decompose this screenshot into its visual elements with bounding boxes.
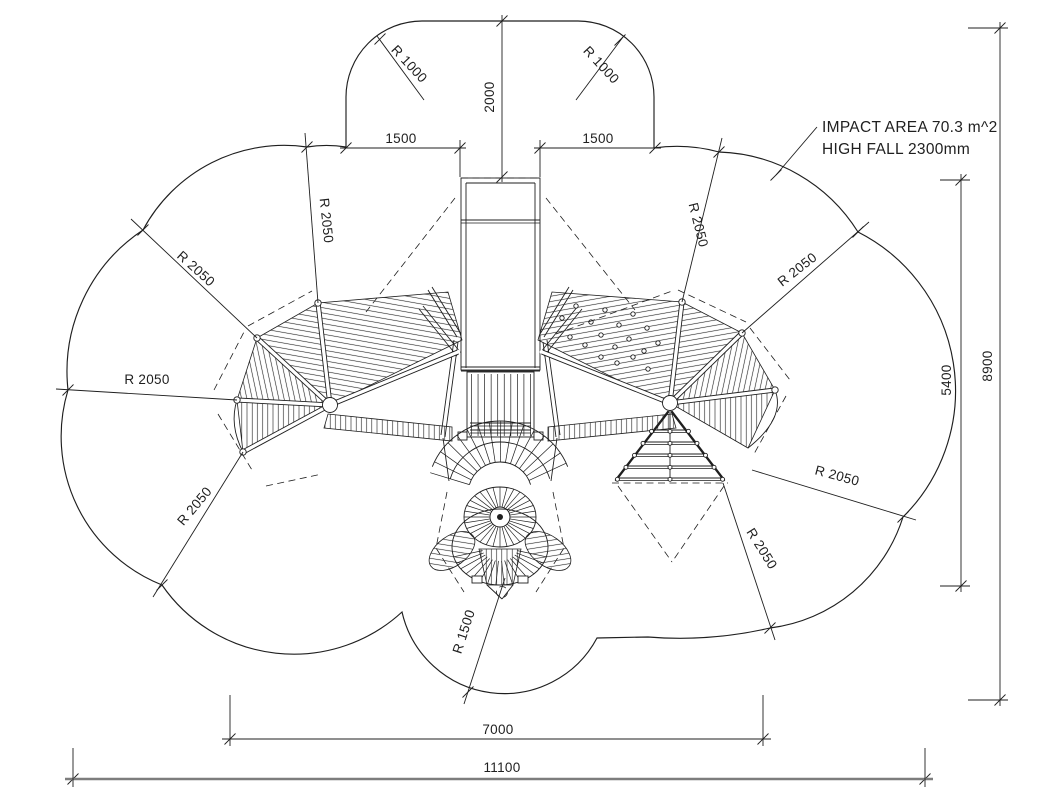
impact-area-note-line2: HIGH FALL 2300mm [822, 141, 970, 158]
bottom-skirt [472, 549, 528, 599]
dim-1500-right: 1500 [582, 131, 613, 146]
right-hub-cap [663, 396, 678, 411]
plan-drawing-canvas: IMPACT AREA 70.3 m^2 HIGH FALL 2300mm 15… [0, 0, 1045, 804]
dim-r1000-left: R 1000 [388, 42, 430, 85]
dim-r2050-4: R 2050 [174, 484, 215, 528]
left-hub-cap [323, 398, 338, 413]
side-petal-right [518, 524, 578, 579]
dim-r1000-right: R 1000 [580, 43, 622, 86]
dim-r2050-5: R 2050 [686, 201, 712, 249]
dim-r1500: R 1500 [450, 608, 478, 656]
dome-climber [464, 487, 536, 547]
dim-r2050-6: R 2050 [775, 250, 820, 290]
dim-r2050-8: R 2050 [743, 525, 780, 571]
dim-r2050-2: R 2050 [174, 248, 218, 289]
dim-1500-left: 1500 [385, 131, 416, 146]
impact-area-note-line1: IMPACT AREA 70.3 m^2 [822, 119, 998, 136]
dim-r2050-1: R 2050 [317, 197, 337, 244]
dim-5400: 5400 [939, 364, 954, 395]
impact-area-plan-svg: IMPACT AREA 70.3 m^2 HIGH FALL 2300mm 15… [0, 0, 1045, 804]
dim-r2050-7: R 2050 [813, 463, 861, 489]
dim-8900: 8900 [980, 350, 995, 381]
dim-r2050-3: R 2050 [124, 372, 169, 387]
left-climbing-hub [234, 292, 462, 452]
dim-2000: 2000 [482, 81, 497, 112]
dim-11100: 11100 [483, 760, 520, 775]
side-petal-left [422, 524, 482, 579]
dim-7000: 7000 [482, 722, 513, 737]
